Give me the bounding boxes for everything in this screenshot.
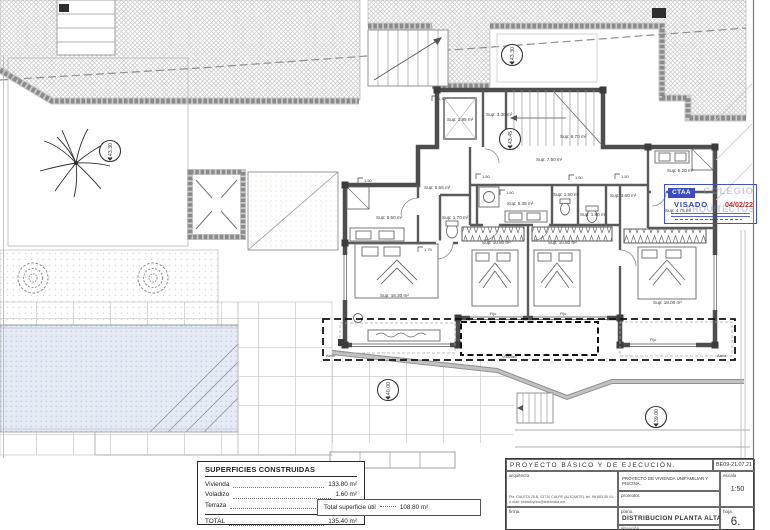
bed-mid-2	[534, 250, 580, 306]
exterior-stair-upper	[368, 30, 448, 86]
room-area-label: Sup: 1.50 m²	[553, 192, 580, 197]
svg-text:143.30: 143.30	[108, 143, 114, 159]
palm-tree	[40, 129, 110, 197]
sheet-cell: hoja. 6.	[720, 507, 755, 530]
bed-left	[355, 244, 438, 298]
scale-cell: escala 1:50	[720, 471, 755, 507]
useful-area-box: Total superficie útil 108.80 m²	[317, 499, 481, 516]
room-area-label: Sup: 3.60 m²	[610, 193, 637, 198]
visado-stamp: CTAA COLEGIO ARQUITECTOS VISADO 04/02/22	[664, 184, 757, 224]
room-area-label: Sup: 3.30 m²	[486, 112, 513, 117]
level-marker: 143.45	[500, 129, 521, 150]
exterior-stair-lower	[517, 393, 553, 423]
stamp-fineprint-line	[671, 213, 750, 214]
stamp-fineprint-line	[675, 219, 742, 220]
gravel-terrace	[248, 172, 338, 250]
scale-value: 1:50	[721, 486, 754, 493]
svg-text:1.50: 1.50	[482, 174, 491, 179]
room-area-label: Sup: 7.50 m²	[536, 157, 563, 162]
room-area-label: Sup: 10.80 m²	[482, 240, 511, 245]
drawing-sheet: 143.30 143.30 143.45 140.00 139.00 Sup: …	[0, 0, 770, 530]
room-area-label: Sup: 6.70 m²	[560, 134, 587, 139]
floor-plan-drawing: 143.30 143.30 143.45 140.00 139.00 Sup: …	[0, 0, 770, 530]
areas-table-title: SUPERFICIES CONSTRUIDAS	[205, 465, 357, 477]
svg-text:1.50: 1.50	[364, 178, 373, 183]
svg-text:139.00: 139.00	[654, 409, 660, 425]
pool	[0, 325, 238, 432]
architect-cell: arquitecto. Pla. CALETA 25-B, 03710 CALP…	[506, 471, 618, 507]
room-area-label: Sup: 16.30 m²	[380, 293, 409, 298]
plan-name-cell: plano. DISTRIBUCION PLANTA ALTA	[618, 507, 720, 525]
useful-area-value: 108.80 m²	[400, 504, 428, 511]
plan-name: DISTRIBUCION PLANTA ALTA	[622, 515, 716, 522]
promoter-cell: promotor.	[618, 491, 720, 507]
alero-label: Alero	[717, 353, 726, 358]
bed-mid-1	[472, 250, 518, 306]
table-row: Vivienda 133.80 m²	[205, 480, 357, 490]
pergola-skylight	[190, 172, 243, 237]
room-area-label: Sup: 18.00 m²	[653, 300, 682, 305]
project-title-cell: PROYECTO DE VIVIENDA UNIFAMILIAR Y PISCI…	[618, 471, 720, 491]
level-marker: 139.00	[646, 407, 667, 428]
room-area-label: Sup: 5.20 m²	[667, 168, 694, 173]
project-code: BE09-21.07.21	[713, 459, 755, 471]
fijo-label: Fijo	[650, 337, 656, 342]
level-marker: 143.30	[100, 141, 121, 162]
visado-label: VISADO	[674, 200, 708, 209]
room-area-label: Sup: 5.35 m²	[507, 201, 534, 206]
svg-text:143.45: 143.45	[508, 131, 514, 147]
terrain-steps	[57, 0, 115, 55]
stamp-watermark: COLEGIO	[703, 186, 754, 197]
level-marker: 140.00	[378, 380, 399, 401]
voladizo-label: Voladizo	[502, 354, 517, 359]
fijo-label: Fijo	[560, 311, 566, 316]
fijo-label: Fijo	[490, 311, 496, 316]
useful-area-label: Total superficie útil	[324, 504, 376, 511]
level-marker: 143.30	[502, 45, 523, 66]
svg-text:140.00: 140.00	[386, 382, 392, 398]
room-area-label: Sup: 5.55 m²	[424, 185, 451, 190]
svg-text:1.75: 1.75	[424, 247, 433, 252]
ctaa-logo: CTAA	[668, 188, 695, 198]
table-total-row: TOTAL 135.40 m²	[205, 514, 357, 527]
room-area-label: Sup: 1.95 m²	[447, 117, 474, 122]
visado-date: 04/02/22	[725, 200, 753, 209]
svg-text:1.50: 1.50	[621, 174, 630, 179]
project-type: PROYECTO BÁSICO Y DE EJECUCIÓN.	[506, 459, 713, 471]
room-area-label: Sup: 5.50 m²	[376, 215, 403, 220]
location-cell: situación.	[618, 525, 720, 530]
room-area-label: Sup: 1.70 m²	[442, 215, 469, 220]
alero-label: Alero	[326, 353, 335, 358]
bed-right	[638, 247, 696, 299]
room-area-label: Sup: 10.80 m²	[548, 240, 577, 245]
svg-text:143.30: 143.30	[510, 47, 516, 63]
stamp-fineprint-line	[671, 216, 750, 217]
room-area-label: Sup: 1.80 m²	[580, 212, 607, 217]
architect-info: Pla. CALETA 25-B, 03710 CALPE (ALICANTE)…	[509, 495, 615, 504]
pillar	[652, 8, 666, 18]
svg-text:1.50: 1.50	[575, 175, 584, 180]
svg-text:1.40: 1.40	[438, 96, 447, 101]
walkway-tiles	[0, 302, 238, 325]
title-block: PROYECTO BÁSICO Y DE EJECUCIÓN. BE09-21.…	[505, 458, 754, 530]
signature-cell: firma.	[506, 507, 618, 530]
sheet-number: 6.	[721, 516, 750, 528]
svg-text:1.50: 1.50	[506, 190, 515, 195]
